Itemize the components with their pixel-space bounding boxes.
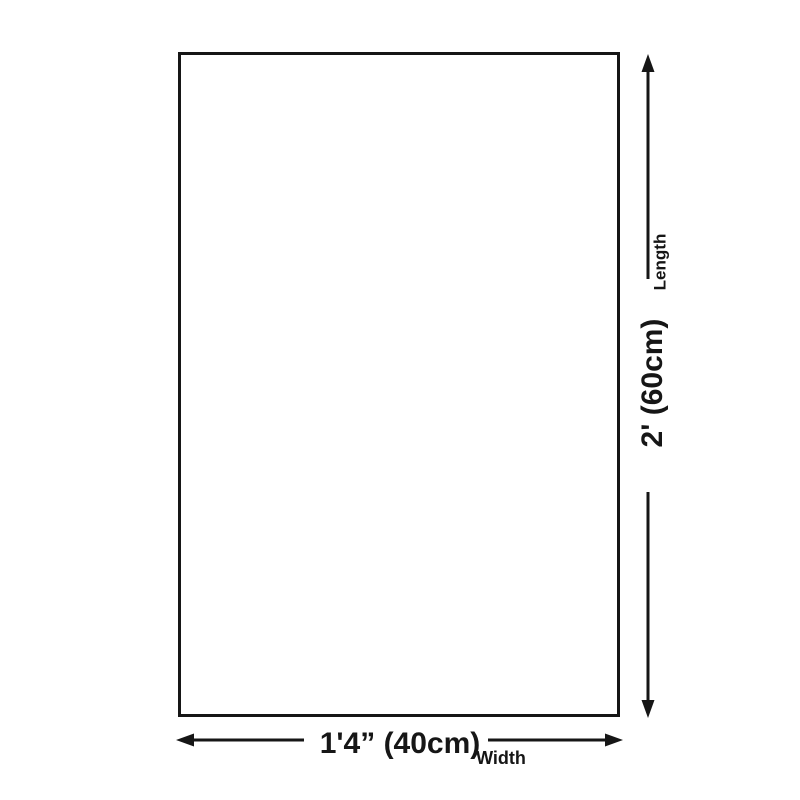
length-label: Length: [652, 234, 669, 291]
arrow-right-icon: [605, 734, 623, 747]
arrow-left-icon: [176, 734, 194, 747]
width-value: 1'4” (40cm): [320, 729, 481, 759]
arrow-up-icon: [642, 54, 655, 72]
arrow-down-icon: [642, 700, 655, 718]
width-label: Width: [476, 749, 526, 767]
dimension-arrows: [0, 0, 800, 800]
length-value: 2' (60cm): [638, 319, 668, 448]
dimension-diagram: 1'4” (40cm) Width 2' (60cm) Length: [0, 0, 800, 800]
